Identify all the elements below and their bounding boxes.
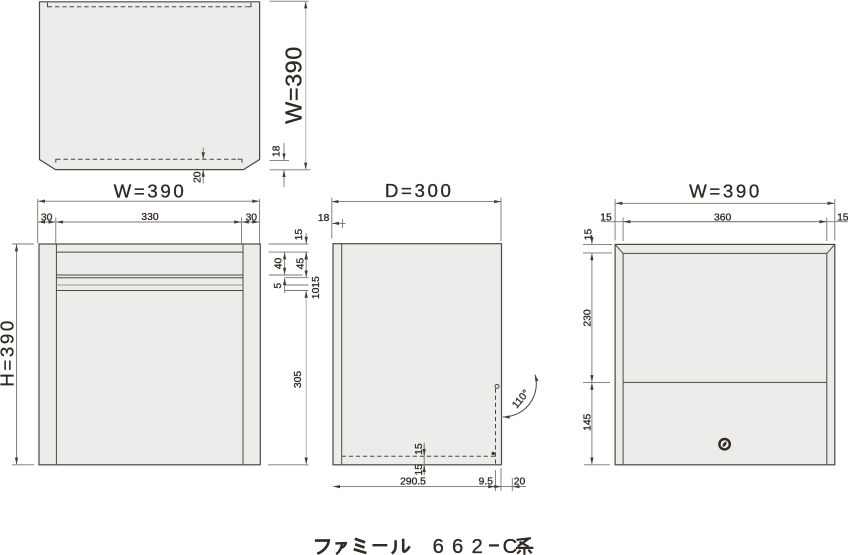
svg-text:290.5: 290.5 [400, 477, 426, 488]
svg-text:145: 145 [582, 413, 593, 430]
svg-text:C: C [503, 536, 518, 555]
svg-text:30: 30 [246, 212, 258, 223]
svg-text:30: 30 [41, 212, 53, 223]
svg-text:15: 15 [584, 229, 595, 241]
svg-text:2: 2 [472, 536, 483, 555]
svg-text:9.5: 9.5 [479, 477, 494, 488]
svg-text:15: 15 [600, 212, 612, 223]
svg-text:W=390: W=390 [114, 181, 187, 202]
svg-text:H=390: H=390 [0, 318, 18, 387]
svg-text:45: 45 [296, 258, 307, 270]
svg-text:20: 20 [192, 171, 203, 183]
svg-text:305: 305 [293, 371, 304, 388]
svg-text:110°: 110° [511, 388, 533, 411]
svg-text:330: 330 [141, 212, 158, 223]
svg-text:1015: 1015 [311, 276, 322, 299]
svg-text:20: 20 [514, 477, 526, 488]
svg-text:230: 230 [582, 309, 593, 326]
svg-text:15: 15 [294, 229, 305, 241]
svg-text:40: 40 [274, 258, 285, 270]
svg-text:5: 5 [273, 283, 284, 289]
svg-text:15: 15 [414, 464, 425, 476]
svg-text:360: 360 [714, 212, 731, 223]
svg-text:D=300: D=300 [385, 180, 454, 201]
svg-text:18: 18 [271, 145, 282, 157]
svg-text:18: 18 [318, 213, 330, 224]
svg-text:15: 15 [414, 443, 425, 455]
svg-text:6: 6 [452, 536, 463, 555]
svg-text:15: 15 [837, 212, 848, 223]
svg-text:6: 6 [433, 536, 444, 555]
svg-text:W=390: W=390 [281, 46, 307, 124]
svg-text:W=390: W=390 [689, 181, 762, 202]
